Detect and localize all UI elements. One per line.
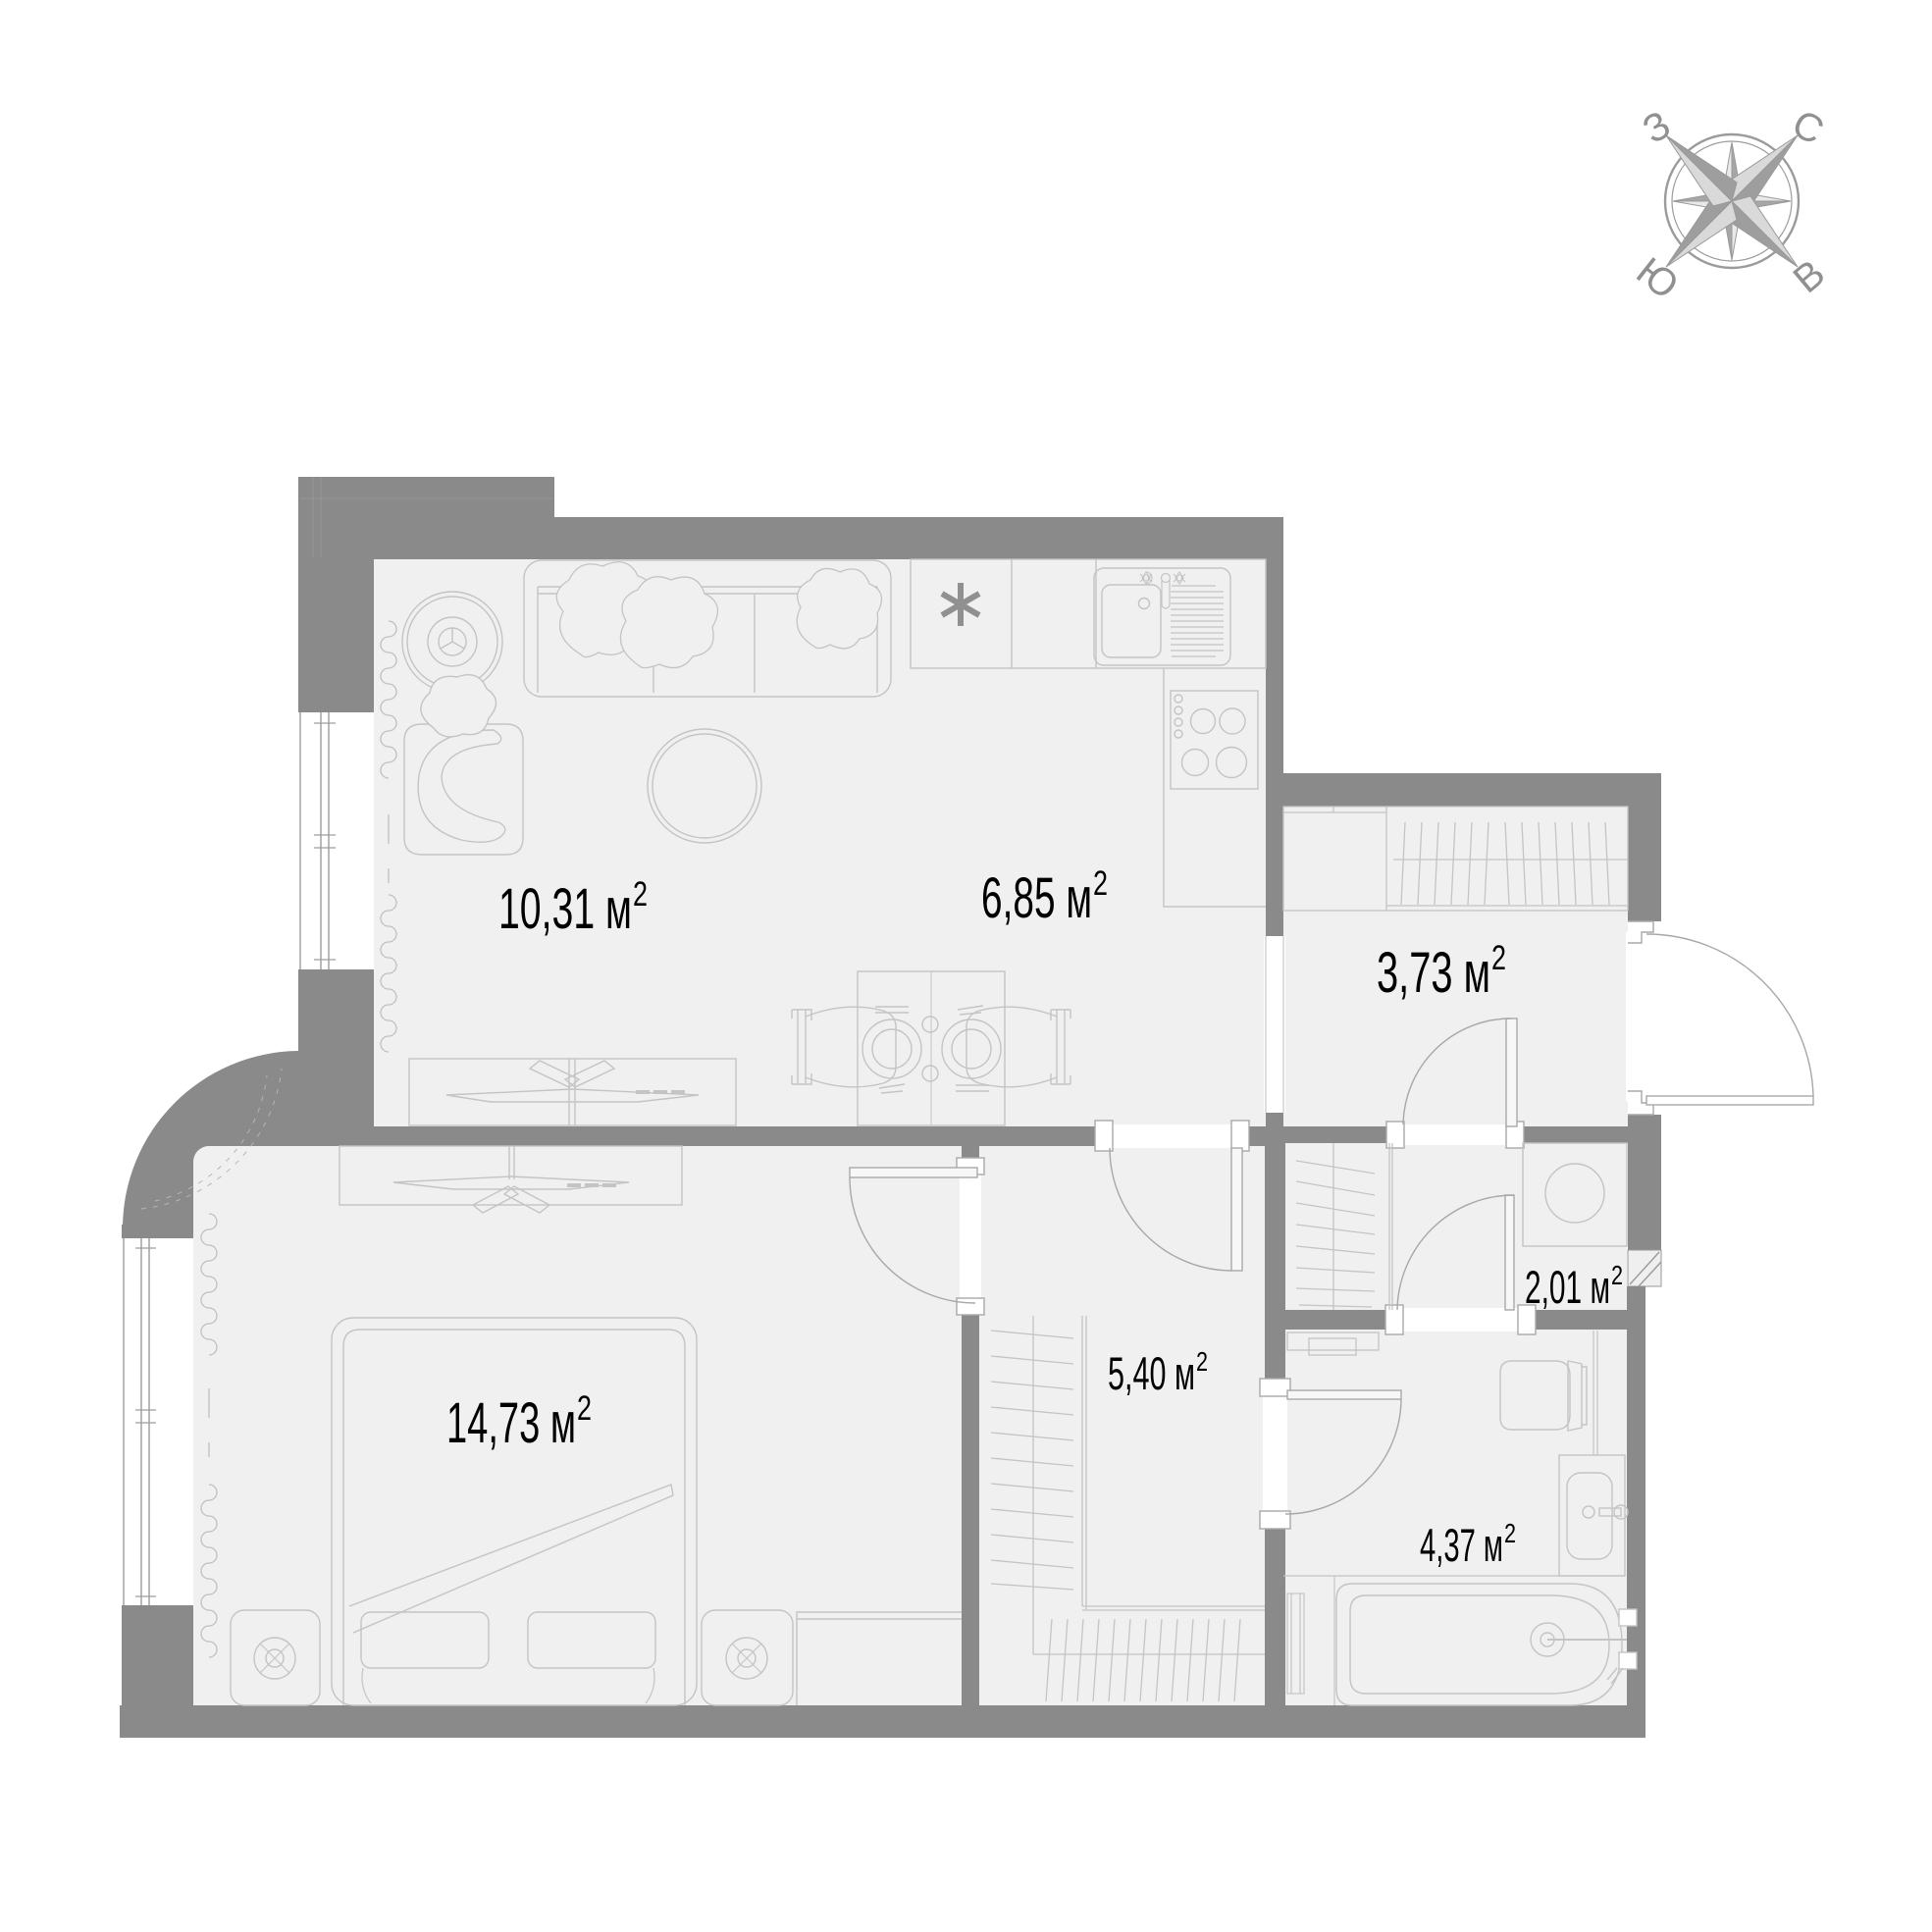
- svg-text:2: 2: [1491, 939, 1506, 977]
- svg-text:3,73 м: 3,73 м: [1377, 941, 1490, 1005]
- svg-text:2: 2: [633, 875, 648, 914]
- svg-text:4,37 м: 4,37 м: [1420, 1519, 1503, 1571]
- svg-text:2: 2: [1611, 1260, 1623, 1290]
- svg-text:2: 2: [577, 1389, 592, 1428]
- svg-text:2: 2: [1196, 1346, 1208, 1377]
- svg-text:10,31 м: 10,31 м: [498, 877, 632, 941]
- svg-text:2: 2: [1504, 1518, 1516, 1548]
- svg-text:5,40 м: 5,40 м: [1108, 1347, 1195, 1399]
- svg-text:2,01 м: 2,01 м: [1525, 1261, 1610, 1313]
- svg-text:14,73 м: 14,73 м: [446, 1391, 576, 1455]
- svg-text:2: 2: [1093, 864, 1108, 903]
- svg-text:6,85 м: 6,85 м: [981, 866, 1092, 930]
